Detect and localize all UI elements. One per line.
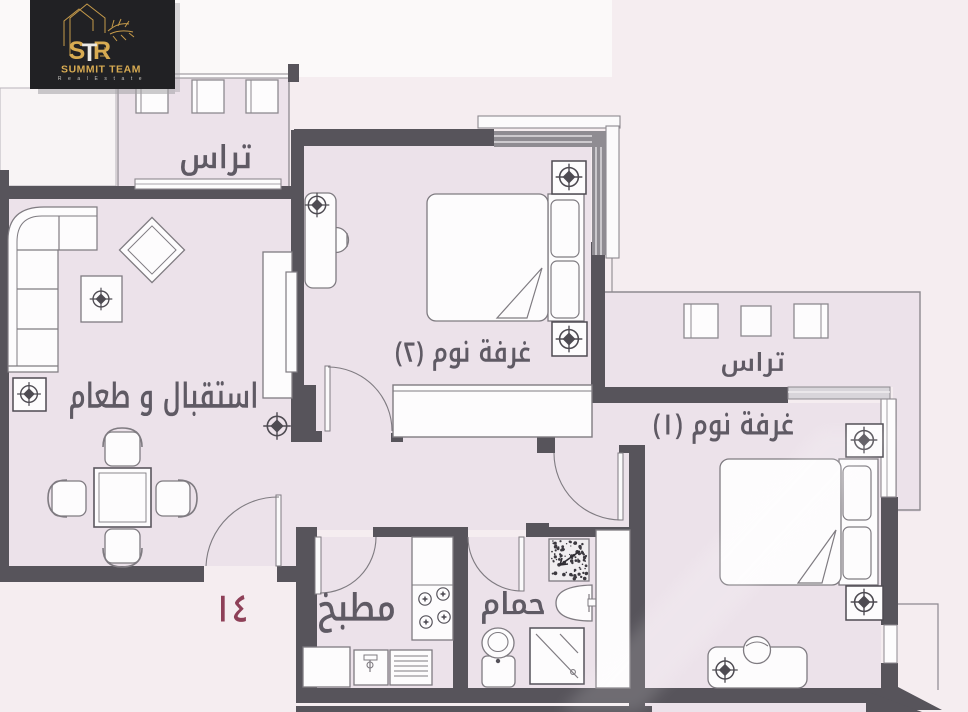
svg-text:R e a l E s t a t e: R e a l E s t a t e bbox=[58, 76, 144, 82]
svg-text:T: T bbox=[82, 39, 97, 67]
svg-text:SUMMIT TEAM: SUMMIT TEAM bbox=[61, 65, 141, 76]
